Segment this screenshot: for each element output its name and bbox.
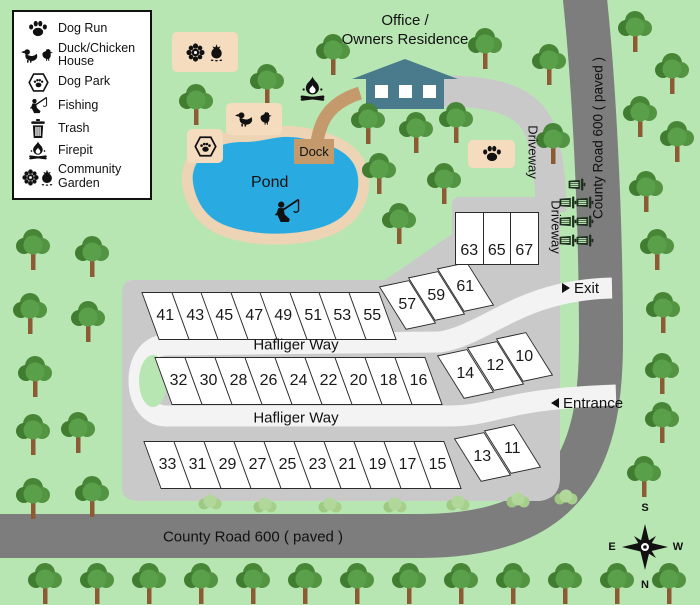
community-garden-icon	[18, 169, 58, 186]
legend-label: Dog Run	[58, 22, 146, 36]
chicken-icon	[258, 111, 274, 127]
lot-number: 55	[358, 293, 387, 339]
paw-icon	[482, 144, 502, 164]
lot-number: 10	[510, 334, 539, 380]
dog-park-icon	[18, 72, 58, 93]
campground-map: Dog Run Duck/Chicken House Dog Park Fish…	[0, 0, 700, 605]
entrance-arrow-icon	[551, 398, 559, 408]
firepit-icon	[18, 141, 58, 161]
community-garden-area	[172, 32, 238, 72]
legend: Dog Run Duck/Chicken House Dog Park Fish…	[12, 10, 152, 200]
pond-label: Pond	[251, 174, 288, 192]
compass-west: W	[673, 541, 683, 553]
legend-label: Duck/Chicken House	[58, 42, 146, 70]
dog-park-icon	[194, 135, 217, 158]
legend-label: Dog Park	[58, 75, 146, 89]
legend-label: Firepit	[58, 144, 146, 158]
hafliger-way-label-upper: Hafliger Way	[253, 337, 338, 354]
lot-number: 65	[484, 213, 511, 264]
legend-item-fishing: Fishing	[18, 95, 146, 116]
firepit-icon	[299, 76, 326, 103]
paw-icon	[18, 19, 58, 39]
tomato-icon	[209, 43, 224, 62]
dog-run-area	[468, 140, 515, 168]
compass-north: N	[641, 579, 649, 591]
driveway-label-upper: Driveway	[526, 125, 541, 178]
lot-number: 61	[451, 264, 480, 310]
lot-67: 67	[510, 212, 539, 265]
office-label: Office / Owners Residence	[300, 12, 510, 50]
lot-number: 11	[498, 426, 527, 472]
driveway-label-lower: Driveway	[549, 200, 564, 253]
duck-icon	[235, 111, 254, 127]
lot-number: 63	[456, 213, 483, 264]
compass-rose: S N E W	[608, 500, 682, 592]
exit-arrow-icon	[562, 283, 570, 293]
lot-65: 65	[483, 212, 512, 265]
legend-item-firepit: Firepit	[18, 141, 146, 161]
legend-item-duck-chicken-house: Duck/Chicken House	[18, 42, 146, 70]
duck-chicken-house-area	[226, 103, 282, 135]
dog-park-area	[187, 129, 223, 163]
legend-item-dog-park: Dog Park	[18, 72, 146, 93]
trash-icon	[18, 119, 58, 138]
legend-item-community-garden: Community Garden	[18, 163, 146, 191]
office-building	[352, 59, 458, 109]
fishing-icon	[18, 95, 58, 116]
entrance-label: Entrance	[551, 395, 623, 412]
compass-star-icon	[621, 523, 669, 571]
fishing-icon	[272, 196, 302, 226]
dock: Dock	[294, 139, 334, 164]
compass-east: E	[608, 541, 615, 553]
dock-label: Dock	[299, 144, 329, 159]
legend-label: Community Garden	[58, 163, 146, 191]
legend-label: Fishing	[58, 99, 146, 113]
exit-label: Exit	[562, 280, 599, 297]
hafliger-way-label-lower: Hafliger Way	[253, 410, 338, 427]
county-road-label-vertical: County Road 600 ( paved )	[591, 57, 606, 219]
lot-63: 63	[455, 212, 484, 265]
flower-icon	[186, 43, 205, 62]
legend-item-trash: Trash	[18, 119, 146, 138]
compass-south: S	[641, 502, 648, 514]
duck-chicken-icon	[18, 48, 58, 63]
legend-label: Trash	[58, 122, 146, 136]
lot-number: 16	[404, 358, 433, 404]
lot-number: 15	[423, 442, 452, 488]
legend-item-dog-run: Dog Run	[18, 19, 146, 39]
lot-number: 67	[511, 213, 538, 264]
county-road-label-horizontal: County Road 600 ( paved )	[163, 529, 343, 546]
